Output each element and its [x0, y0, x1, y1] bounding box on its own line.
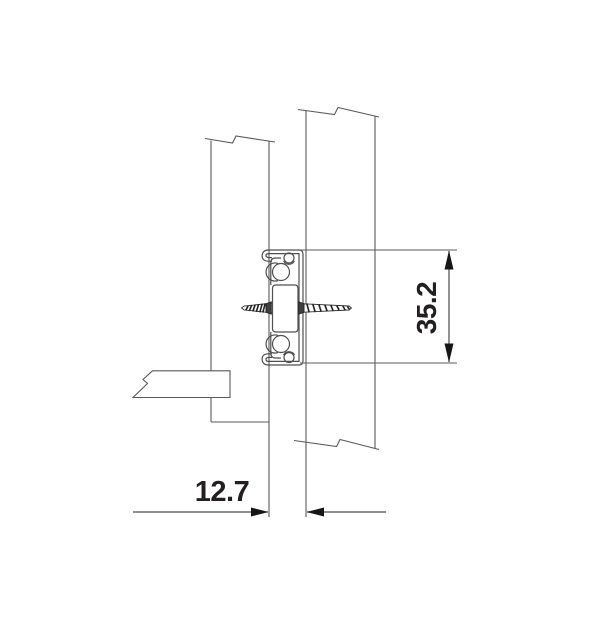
lower-large-ball [273, 336, 290, 353]
upper-small-ball [284, 253, 294, 263]
mounting-screw-right [299, 302, 352, 314]
right-panel-top-break-line [298, 108, 379, 118]
dim-35-2-arrow-down [445, 344, 454, 363]
drawer-bottom-panel [133, 371, 230, 398]
mounting-screw-left [242, 302, 272, 314]
left-panel [205, 136, 275, 517]
dimension-12-7 [133, 508, 386, 517]
technical-drawing-canvas: 35.2 12.7 [0, 0, 605, 637]
upper-large-ball [273, 264, 290, 281]
drawing-svg [0, 0, 605, 637]
screw-left-head [266, 302, 271, 314]
inner-rail-upper-flange [271, 258, 281, 263]
inner-rail-center-web [273, 285, 299, 332]
left-panel-top-break-line [205, 136, 275, 143]
dim-12-7-arrow-right [251, 508, 269, 517]
dimension-label-mount-offset: 12.7 [162, 477, 282, 507]
right-panel-bottom-break-line [294, 440, 379, 450]
screw-right-head [299, 302, 304, 314]
inner-rail-lower-flange [271, 353, 281, 358]
dimension-label-slide-height: 35.2 [412, 258, 442, 358]
drawer-bottom-outline [133, 371, 230, 398]
dim-35-2-arrow-up [445, 251, 454, 270]
dim-12-7-arrow-left [307, 508, 325, 517]
ball-bearings [273, 253, 295, 363]
